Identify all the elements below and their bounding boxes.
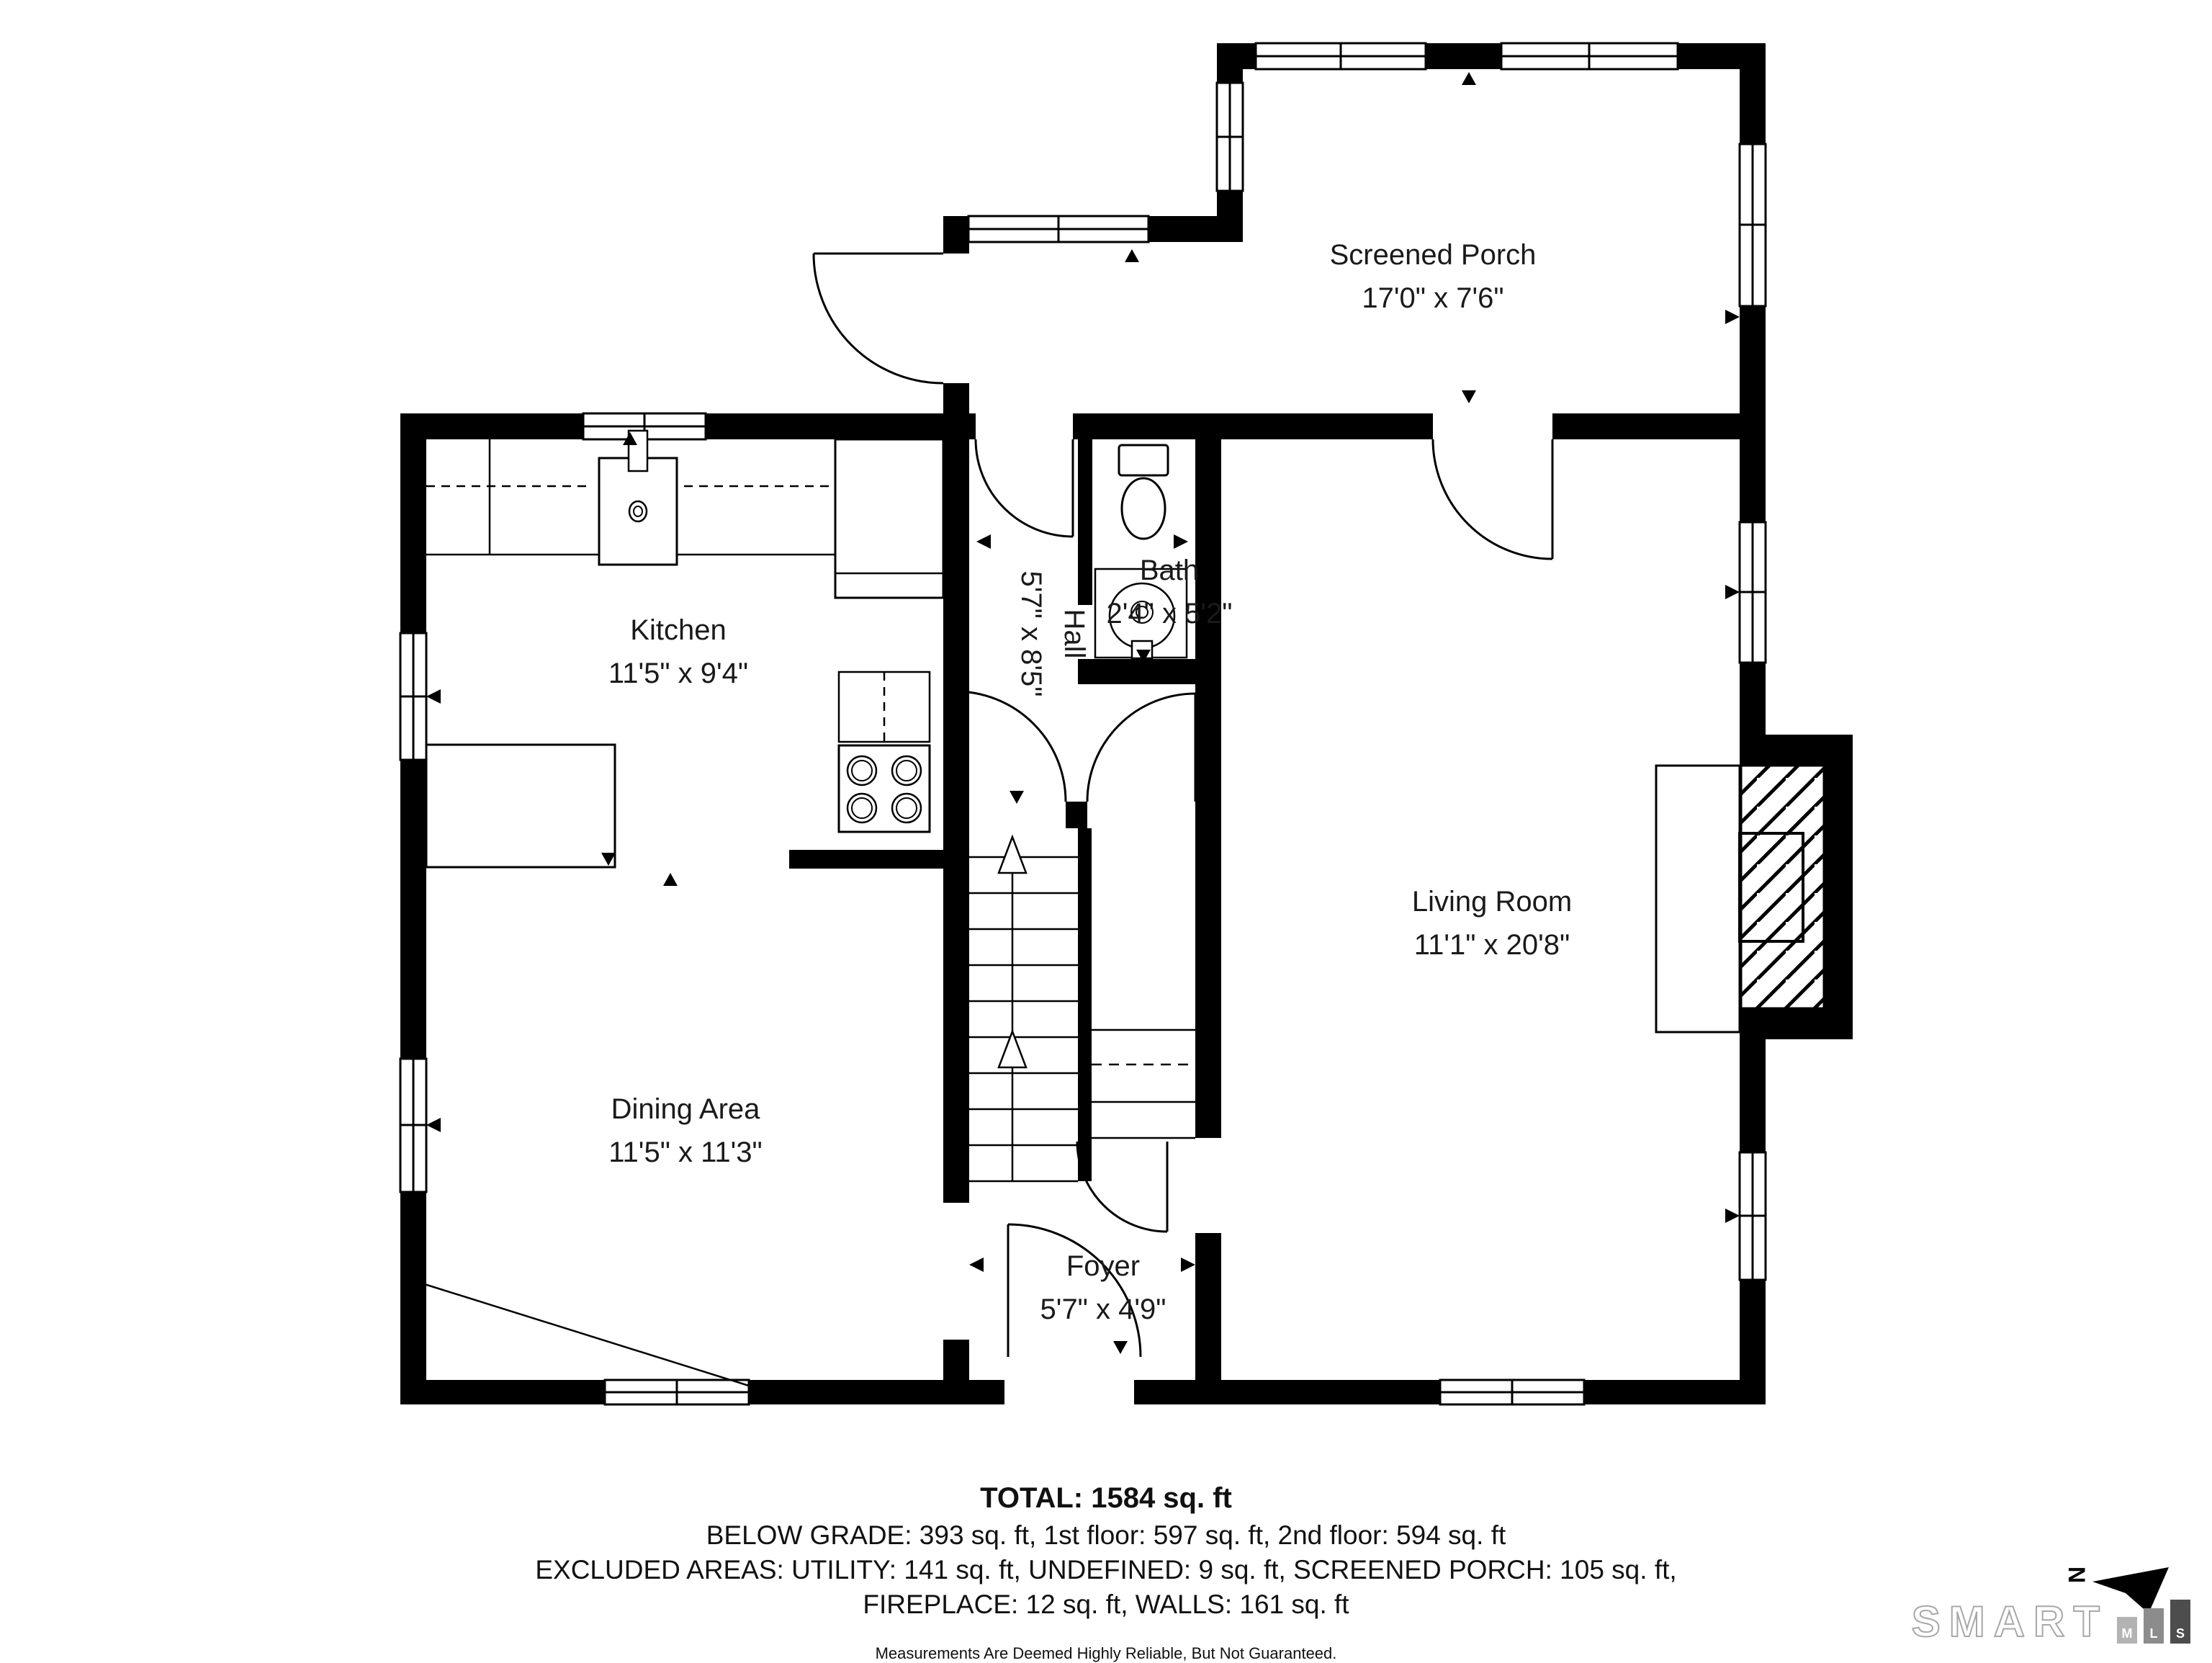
living-right-window-upper <box>1740 522 1766 663</box>
porch-right-window <box>1740 144 1766 306</box>
kitchen-stove <box>839 672 930 832</box>
porch-left-window <box>1217 83 1243 191</box>
room-name: Living Room <box>1412 886 1572 918</box>
disclaimer-text: Measurements Are Deemed Highly Reliable,… <box>0 1644 2212 1663</box>
hall-basement-door <box>1087 694 1195 802</box>
room-name: Bath <box>1140 555 1199 586</box>
room-dims: 11'1" x 20'8" <box>1414 929 1570 961</box>
north-label: N <box>2063 1566 2090 1583</box>
kitchen-island <box>426 745 615 867</box>
room-name: Dining Area <box>611 1093 760 1125</box>
floorplan-drawing <box>0 0 2212 1659</box>
mls-bar-s: S <box>2170 1600 2190 1644</box>
living-window-bottom <box>1440 1380 1584 1404</box>
smart-mls-logo: SMART M L S <box>1912 1600 2190 1644</box>
room-name: Hall <box>1058 609 1090 659</box>
dining-side-window <box>400 1059 426 1192</box>
kitchen-side-window <box>400 633 426 760</box>
area-summary: TOTAL: 1584 sq. ft BELOW GRADE: 393 sq. … <box>0 1482 2212 1663</box>
total-area: TOTAL: 1584 sq. ft <box>0 1482 2212 1515</box>
room-label-foyer: Foyer 5'7" x 4'9" <box>1040 1245 1166 1331</box>
room-name: Screened Porch <box>1330 239 1537 271</box>
stairs-down-basement <box>1092 1030 1195 1138</box>
kitchen-sink <box>599 431 677 565</box>
room-label-screened-porch: Screened Porch 17'0" x 7'6" <box>1330 233 1537 320</box>
excluded-areas-line2: FIREPLACE: 12 sq. ft, WALLS: 161 sq. ft <box>0 1590 2212 1620</box>
walls <box>400 43 1766 1404</box>
room-dims: 5'7" x 8'5" <box>1015 571 1047 697</box>
mls-bar-m: M <box>2117 1617 2137 1644</box>
room-label-bath: Bath 2'4" x 5'2" <box>1107 549 1233 635</box>
mls-bars: M L S <box>2117 1600 2190 1644</box>
mls-bar-l: L <box>2144 1608 2164 1644</box>
porch-step-window <box>968 216 1148 242</box>
room-label-living-room: Living Room 11'1" x 20'8" <box>1412 880 1572 967</box>
room-dims: 17'0" x 7'6" <box>1362 282 1503 314</box>
floor-areas: BELOW GRADE: 393 sq. ft, 1st floor: 597 … <box>0 1520 2212 1551</box>
hall-stair-door <box>956 691 1066 802</box>
dining-window <box>605 1380 749 1404</box>
room-name: Foyer <box>1066 1250 1140 1282</box>
room-dims: 11'5" x 9'4" <box>608 658 748 689</box>
room-label-kitchen: Kitchen 11'5" x 9'4" <box>608 609 748 695</box>
excluded-areas-line1: EXCLUDED AREAS: UTILITY: 141 sq. ft, UND… <box>0 1555 2212 1585</box>
fireplace <box>1656 735 1853 1039</box>
porch-exterior-door <box>814 254 943 383</box>
room-dims: 11'5" x 11'3" <box>608 1137 762 1168</box>
hearth <box>1656 766 1740 1032</box>
room-name: Kitchen <box>630 614 726 646</box>
floorplan-page: Screened Porch 17'0" x 7'6" Kitchen 11'5… <box>0 0 2212 1659</box>
room-dims: 5'7" x 4'9" <box>1040 1294 1166 1325</box>
stairs-up <box>969 837 1078 1181</box>
porch-hall-door <box>976 439 1073 537</box>
room-label-hall: Hall 5'7" x 8'5" <box>1010 571 1096 697</box>
toilet <box>1119 445 1168 539</box>
room-dims: 2'4" x 5'2" <box>1107 598 1233 629</box>
brand-wordmark: SMART <box>1912 1600 2108 1644</box>
porch-living-door <box>1433 439 1552 559</box>
porch-window-top-right <box>1501 43 1678 69</box>
porch-window-top-left <box>1256 43 1426 69</box>
refrigerator <box>835 439 943 598</box>
living-right-window-lower <box>1740 1152 1766 1280</box>
windows <box>400 43 1766 1404</box>
dining-ceiling-cut-line <box>418 1282 749 1386</box>
room-label-dining-area: Dining Area 11'5" x 11'3" <box>608 1088 762 1174</box>
